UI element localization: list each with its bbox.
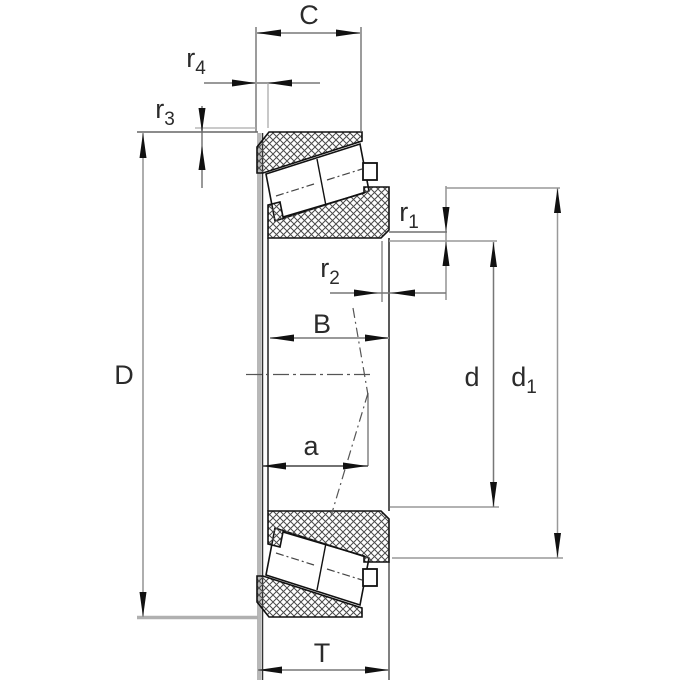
dimension-a: a	[262, 431, 368, 470]
dimension-C: C	[256, 0, 361, 132]
d-outer-arrow-bottom	[140, 592, 147, 617]
t-arrow-left	[258, 667, 282, 674]
centerlines	[246, 308, 371, 516]
pressure-line-upper	[353, 308, 368, 395]
r4-arrow-left	[232, 80, 256, 87]
dimension-r4: r4	[186, 43, 320, 128]
label-r3: r3	[155, 94, 175, 130]
r1-arrow-down	[443, 207, 450, 232]
dimension-r2: r2	[320, 241, 446, 302]
dimension-d: d	[389, 241, 499, 507]
d1-arrow-top	[554, 188, 561, 213]
dimension-r3: r3	[155, 94, 256, 188]
d-outer-arrow-top	[140, 133, 147, 158]
label-B: B	[313, 309, 331, 339]
r2-arrow-left	[354, 290, 378, 297]
b-arrow-right	[365, 335, 389, 342]
dimension-B: B	[270, 309, 389, 342]
label-r4: r4	[186, 43, 206, 79]
label-d1: d1	[511, 362, 537, 398]
label-T: T	[314, 638, 331, 668]
d-bore-arrow-bottom	[490, 482, 497, 507]
a-arrow-right	[343, 463, 367, 470]
label-r2: r2	[320, 253, 340, 289]
r4-arrow-right	[268, 80, 292, 87]
b-arrow-left	[270, 335, 294, 342]
d-bore-arrow-top	[490, 242, 497, 267]
label-C: C	[299, 0, 319, 30]
t-arrow-right	[365, 667, 389, 674]
label-D: D	[114, 360, 134, 390]
d1-arrow-bottom	[554, 533, 561, 558]
c-arrow-left	[257, 30, 281, 37]
drawing-svg: C r4 r3 D r1 r2	[0, 0, 680, 680]
dimension-r1: r1	[389, 186, 450, 300]
cage-lower	[363, 569, 377, 586]
r1-arrow-up	[443, 241, 450, 266]
a-arrow-left	[262, 463, 286, 470]
r2-arrow-right	[391, 290, 415, 297]
label-a: a	[303, 431, 319, 461]
r3-arrow-up	[199, 146, 206, 170]
dimension-D: D	[114, 132, 258, 618]
cage-upper	[363, 163, 377, 180]
bearing-lower-section	[257, 511, 389, 617]
dimension-T: T	[258, 638, 389, 674]
bearing-dimension-drawing: C r4 r3 D r1 r2	[0, 0, 680, 680]
label-r1: r1	[399, 197, 419, 233]
pressure-line-lower	[331, 393, 368, 516]
label-d: d	[464, 362, 479, 392]
bearing-upper-section	[257, 132, 389, 238]
c-arrow-right	[336, 30, 360, 37]
